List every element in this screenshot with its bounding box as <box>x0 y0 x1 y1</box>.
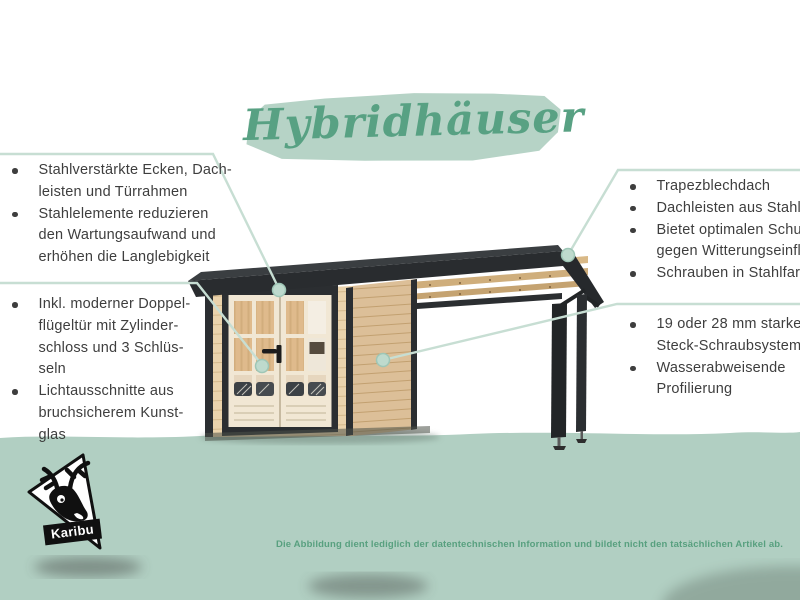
callout-marker-door-frame <box>273 284 286 297</box>
bullet-dot <box>630 271 636 277</box>
callout-block-roof: Trapezblechdach Dachleisten aus Stahl Bi… <box>626 176 800 285</box>
feature-line: Wasserabweisende <box>657 358 786 380</box>
bullet-dot <box>630 322 636 328</box>
feature-line: Stahlelemente reduzieren <box>39 204 216 226</box>
feature-line: Dachleisten aus Stahl <box>657 198 800 220</box>
canopy-post-rear <box>576 294 587 432</box>
feature-line: Stahlverstärkte Ecken, Dach- <box>39 160 232 182</box>
feature-line: schloss und 3 Schlüs- <box>39 338 191 360</box>
feature-line: Bietet optimalen Schutz <box>657 220 800 242</box>
infographic-canvas: Hybridhäuser Stahlverstärkte Ecken, Dach… <box>0 0 800 600</box>
feature-bullet: 19 oder 28 mm starkes Steck-Schraubsyste… <box>626 314 800 358</box>
side-wall-corner-trim <box>411 279 417 430</box>
feature-bullet: Schrauben in Stahlfarbe <box>626 263 800 285</box>
shadow <box>34 557 142 577</box>
shadow <box>308 574 428 598</box>
callout-block-door: Inkl. moderner Doppel- flügeltür mit Zyl… <box>8 294 218 447</box>
bullet-dot <box>630 206 636 212</box>
bullet-dot <box>630 228 636 234</box>
title-banner: Hybridhäuser <box>243 92 561 162</box>
canopy-post-front <box>551 303 567 438</box>
feature-bullet: Stahlelemente reduzieren den Wartungsauf… <box>8 204 228 269</box>
feature-line: den Wartungsaufwand und <box>39 225 216 247</box>
feature-line: Steck-Schraubsystem <box>657 336 800 358</box>
callout-marker-door-glass <box>256 360 269 373</box>
feature-bullet: Lichtausschnitte aus bruchsicherem Kunst… <box>8 381 218 446</box>
bullet-dot <box>12 389 18 395</box>
callout-marker-wall <box>377 354 390 367</box>
bullet-dot <box>12 302 18 308</box>
feature-bullet: Stahlverstärkte Ecken, Dach- leisten und… <box>8 160 228 204</box>
feature-line: Profilierung <box>657 379 786 401</box>
feature-line: Inkl. moderner Doppel- <box>39 294 191 316</box>
feature-bullet: Wasserabweisende Profilierung <box>626 358 800 402</box>
feature-bullet: Trapezblechdach <box>626 176 800 198</box>
feature-line: seln <box>39 359 191 381</box>
feature-line: bruchsicherem Kunst- <box>39 403 184 425</box>
feature-line: Schrauben in Stahlfarbe <box>657 263 800 285</box>
callout-block-wall-system: 19 oder 28 mm starkes Steck-Schraubsyste… <box>626 314 800 401</box>
bullet-dot <box>12 168 18 174</box>
feature-line: glas <box>39 425 184 447</box>
page-title: Hybridhäuser <box>242 82 562 162</box>
bullet-dot <box>630 366 636 372</box>
feature-bullet: Bietet optimalen Schutz gegen Witterungs… <box>626 220 800 264</box>
feature-line: 19 oder 28 mm starkes <box>657 314 800 336</box>
feature-bullet: Dachleisten aus Stahl <box>626 198 800 220</box>
front-wall-right-trim <box>346 287 353 436</box>
feature-line: erhöhen die Langlebigkeit <box>39 247 216 269</box>
bullet-dot <box>630 184 636 190</box>
bullet-dot <box>12 212 18 218</box>
feature-line: Trapezblechdach <box>657 176 771 198</box>
feature-line: gegen Witterungseinflüsse <box>657 241 800 263</box>
feature-line: leisten und Türrahmen <box>39 182 232 204</box>
feature-line: flügeltür mit Zylinder- <box>39 316 191 338</box>
feature-bullet: Inkl. moderner Doppel- flügeltür mit Zyl… <box>8 294 218 381</box>
callout-marker-roof <box>562 249 575 262</box>
feature-line: Lichtausschnitte aus <box>39 381 184 403</box>
brand-logo: Karibu <box>20 450 112 558</box>
disclaimer-text: Die Abbildung dient lediglich der datent… <box>276 539 783 550</box>
double-door <box>222 285 338 436</box>
callout-block-steel-elements: Stahlverstärkte Ecken, Dach- leisten und… <box>8 160 228 269</box>
